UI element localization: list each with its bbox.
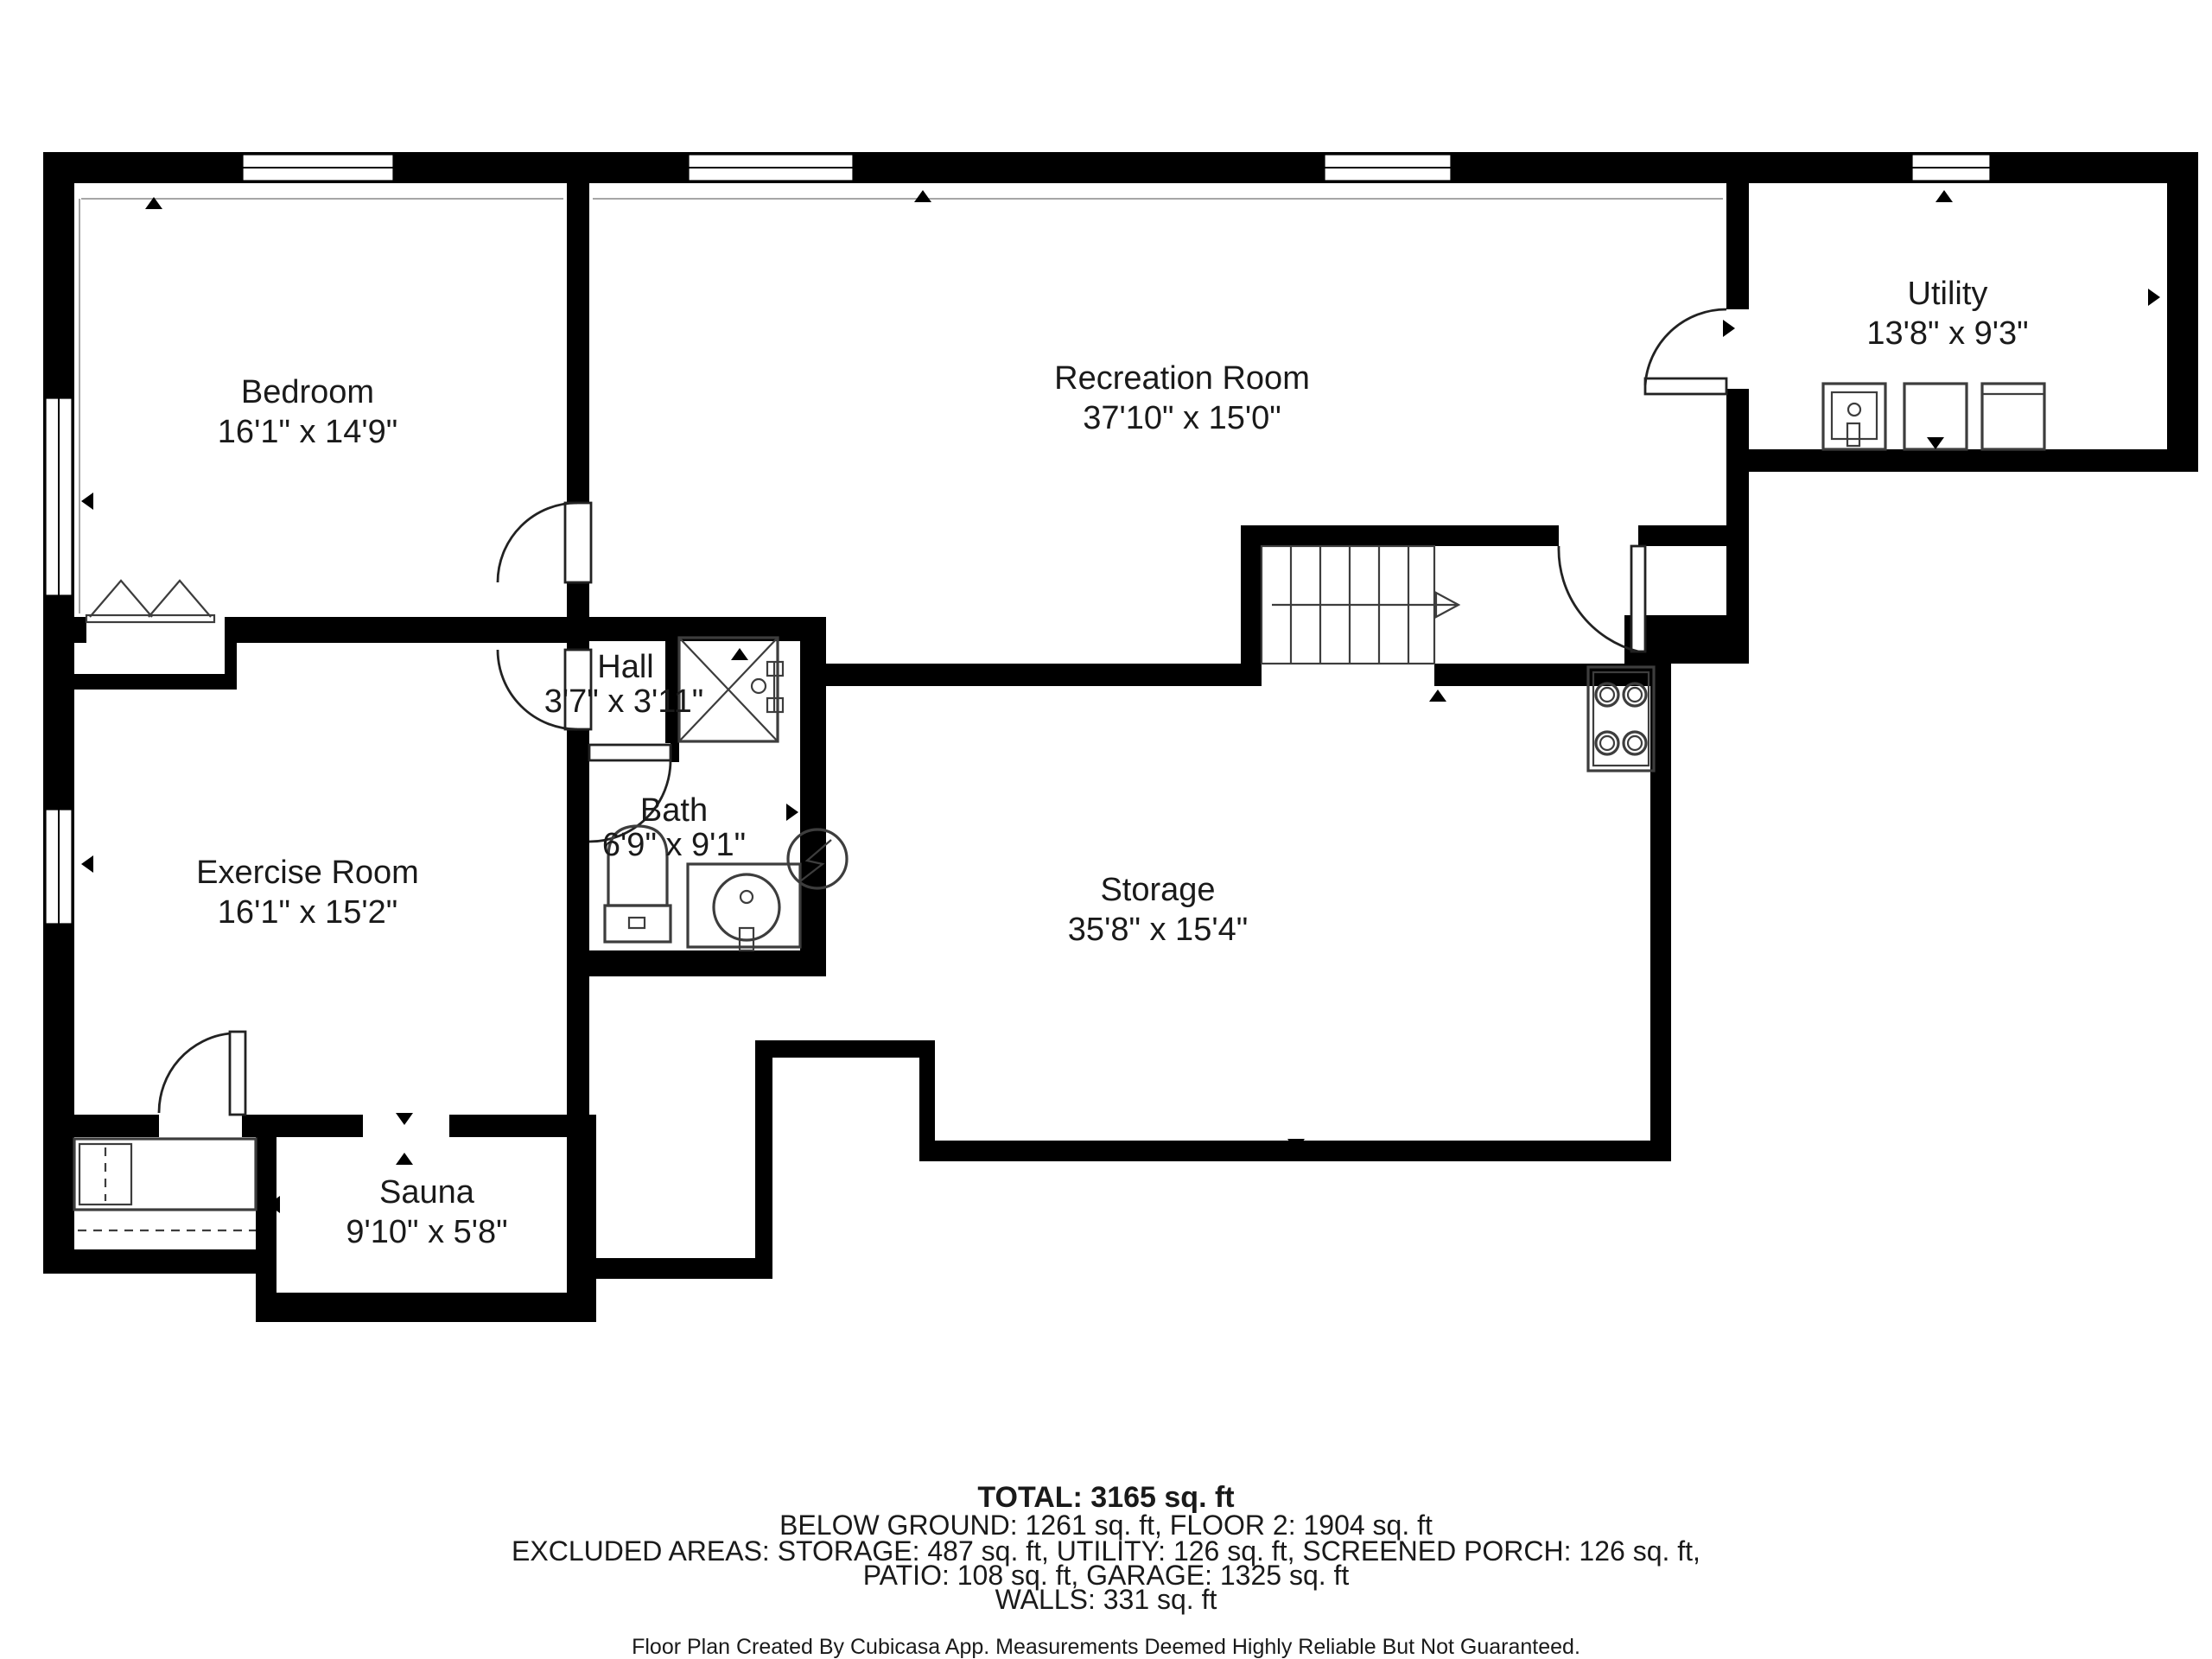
wall — [755, 1040, 935, 1058]
wall — [567, 950, 826, 976]
window — [45, 397, 73, 596]
room-label-sauna: Sauna — [379, 1174, 475, 1211]
wall — [242, 1115, 276, 1137]
floor-plan-page: Bedroom 16'1" x 14'9" Recreation Room 37… — [0, 0, 2212, 1659]
tick — [914, 190, 931, 202]
tick — [786, 804, 798, 821]
tick — [1927, 437, 1944, 449]
wall — [1726, 389, 1749, 615]
wall — [588, 1258, 772, 1279]
room-label-exercise: Exercise Room — [196, 855, 419, 891]
wall — [256, 1293, 596, 1322]
wall — [1726, 183, 1749, 309]
room-dims-sauna: 9'10" x 5'8" — [346, 1214, 507, 1250]
wall — [237, 617, 589, 643]
tick — [396, 1113, 413, 1125]
dryer-icon — [1982, 384, 2044, 449]
wall — [575, 1115, 596, 1322]
wall — [1738, 449, 2198, 472]
room-label-hall: Hall — [597, 649, 653, 685]
wall — [276, 1115, 363, 1137]
tick — [731, 648, 748, 660]
wall — [567, 183, 589, 503]
wall — [1638, 525, 1749, 546]
room-labels: Bedroom 16'1" x 14'9" Recreation Room 37… — [196, 276, 2028, 1250]
wall — [1241, 525, 1262, 686]
summary-disclaimer: Floor Plan Created By Cubicasa App. Meas… — [632, 1635, 1580, 1659]
room-label-storage: Storage — [1100, 872, 1215, 908]
tick — [1723, 320, 1735, 337]
summary-walls: WALLS: 331 sq. ft — [995, 1584, 1217, 1615]
bathroom-sink-icon — [688, 864, 800, 950]
wall — [43, 1249, 276, 1274]
wall — [800, 636, 826, 976]
room-label-recreation: Recreation Room — [1054, 360, 1310, 397]
room-dims-storage: 35'8" x 15'4" — [1068, 912, 1248, 948]
room-dims-utility: 13'8" x 9'3" — [1866, 315, 2028, 352]
tick — [81, 493, 93, 510]
wall — [1241, 525, 1559, 546]
tick — [81, 855, 93, 873]
window — [45, 809, 73, 925]
wall — [2167, 152, 2198, 472]
door-exercise-alcove — [159, 1032, 245, 1115]
room-dims-bath: 6'9" x 9'1" — [602, 827, 746, 863]
wall — [449, 1115, 589, 1137]
summary-block: TOTAL: 3165 sq. ft BELOW GROUND: 1261 sq… — [512, 1481, 1700, 1659]
door-storage — [1559, 546, 1645, 652]
wall — [43, 152, 74, 1274]
stairs — [1262, 546, 1459, 664]
wall — [567, 741, 589, 762]
stairs-direction-arrow — [1272, 593, 1459, 617]
tick — [2148, 289, 2160, 306]
room-dims-recreation: 37'10" x 15'0" — [1083, 400, 1281, 436]
door-utility — [1645, 309, 1726, 394]
tick — [1429, 690, 1446, 702]
wall — [43, 674, 237, 690]
window — [1911, 154, 1991, 181]
wall — [755, 1040, 772, 1279]
room-label-bedroom: Bedroom — [241, 374, 374, 410]
wall — [43, 617, 86, 643]
bed-icon — [74, 1139, 256, 1230]
floor-plan-canvas: Bedroom 16'1" x 14'9" Recreation Room 37… — [0, 0, 2212, 1659]
window — [688, 154, 854, 181]
tick — [1935, 190, 1953, 202]
room-dims-exercise: 16'1" x 15'2" — [218, 894, 397, 931]
room-dims-hall: 3'7" x 3'11" — [544, 683, 703, 720]
tick — [396, 1153, 413, 1165]
wall — [826, 664, 1241, 686]
wall — [43, 1115, 159, 1137]
room-label-bath: Bath — [640, 792, 708, 829]
room-dims-bedroom: 16'1" x 14'9" — [218, 414, 397, 450]
closet-bifold-doors-icon — [86, 581, 214, 622]
window — [1324, 154, 1452, 181]
wall — [256, 1115, 276, 1322]
door-bedroom — [498, 503, 591, 582]
wall — [671, 741, 679, 762]
room-label-utility: Utility — [1908, 276, 1988, 312]
window — [242, 154, 394, 181]
utility-sink-icon — [1823, 384, 1885, 449]
